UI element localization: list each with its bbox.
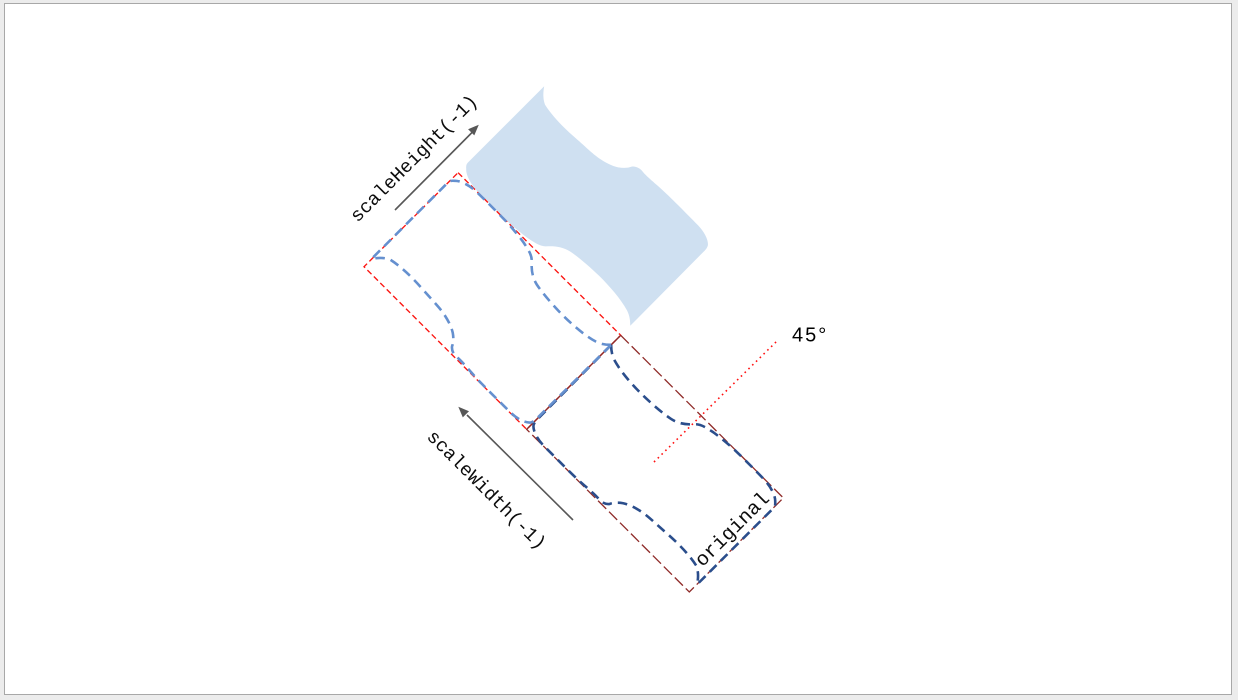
svg-text:45°: 45°: [792, 325, 828, 347]
svg-text:scaleWidth(-1): scaleWidth(-1): [422, 426, 550, 554]
svg-text:original: original: [691, 488, 775, 572]
svg-text:scaleHeight(-1): scaleHeight(-1): [346, 91, 482, 227]
